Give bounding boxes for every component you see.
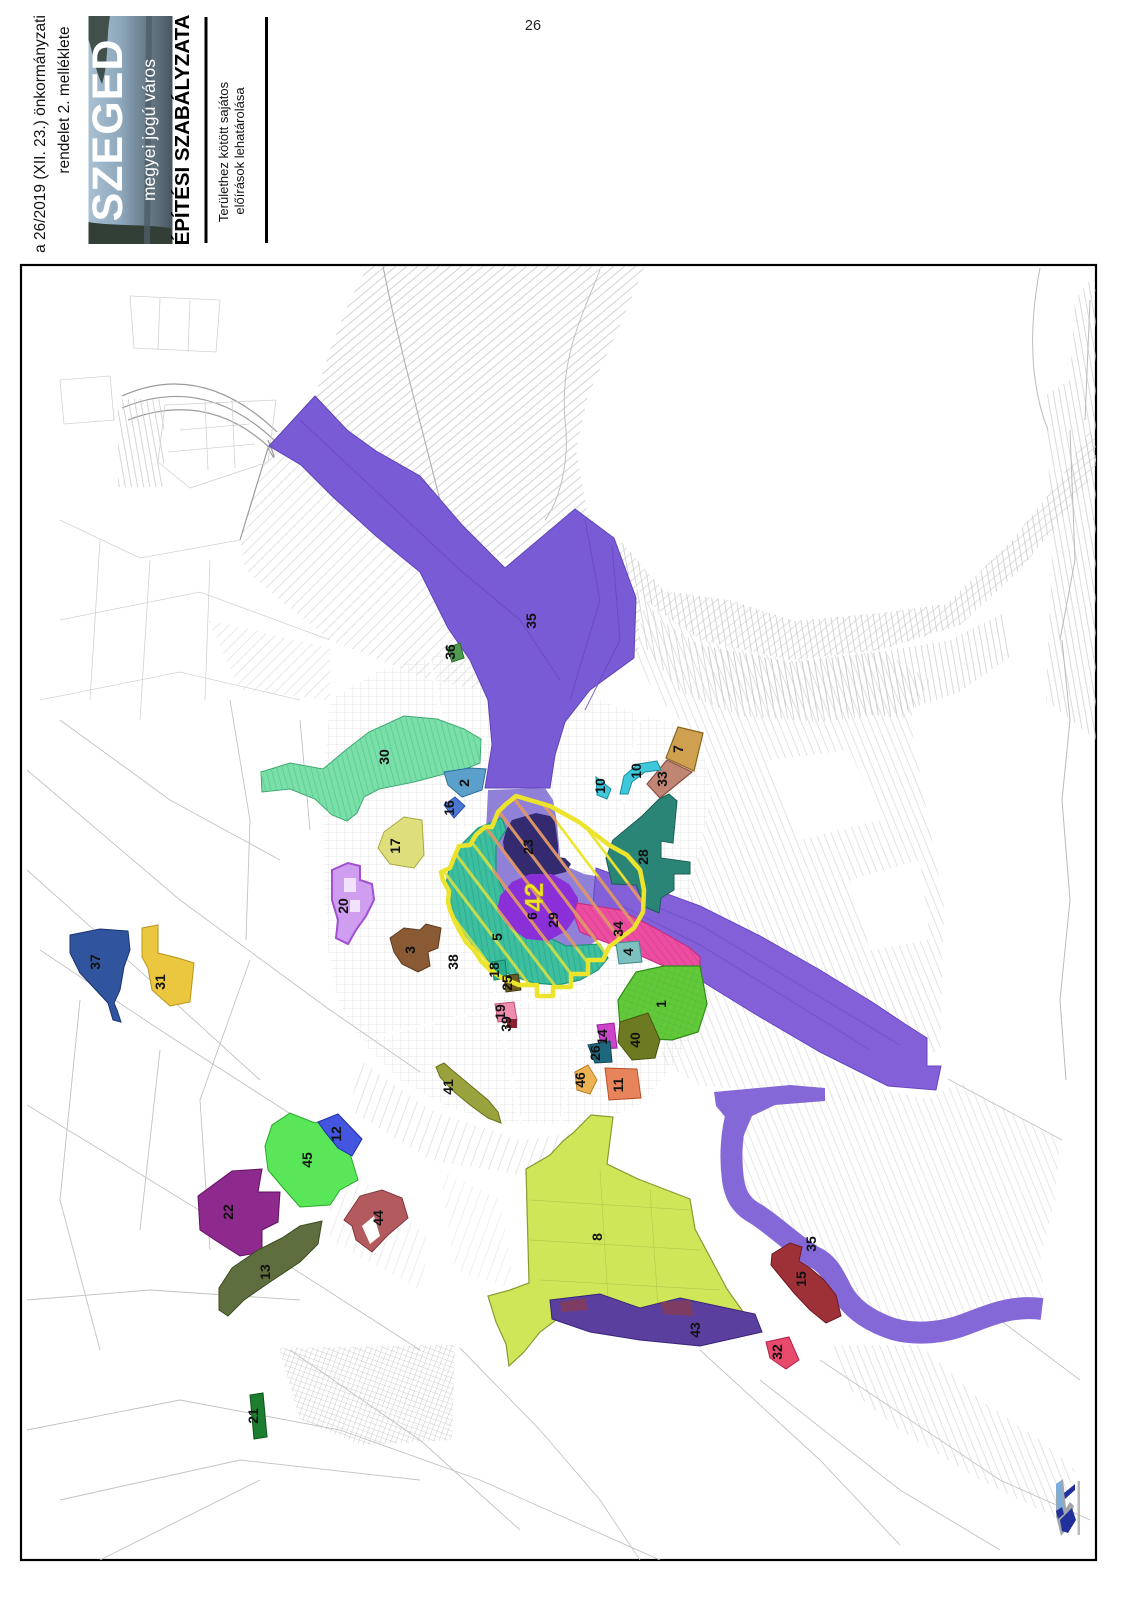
svg-text:7: 7 [670, 745, 686, 753]
svg-text:2: 2 [456, 779, 472, 787]
svg-text:34: 34 [610, 921, 626, 937]
svg-text:40: 40 [627, 1032, 643, 1048]
svg-text:26: 26 [525, 18, 541, 34]
svg-text:21: 21 [245, 1408, 261, 1424]
svg-text:20: 20 [335, 898, 351, 914]
svg-text:1: 1 [653, 1000, 669, 1008]
svg-text:4: 4 [620, 948, 636, 956]
svg-text:35: 35 [803, 1236, 819, 1252]
svg-text:14: 14 [594, 1029, 610, 1045]
svg-text:39: 39 [498, 1016, 514, 1032]
svg-text:6: 6 [524, 912, 540, 920]
svg-text:megyei jogú város: megyei jogú város [139, 59, 159, 201]
svg-text:43: 43 [687, 1322, 703, 1338]
svg-text:17: 17 [387, 838, 403, 854]
svg-text:11: 11 [610, 1077, 626, 1092]
svg-text:38: 38 [445, 954, 461, 970]
svg-text:ÉPÍTÉSI SZABÁLYZATA: ÉPÍTÉSI SZABÁLYZATA [171, 14, 194, 245]
svg-text:28: 28 [635, 849, 651, 865]
svg-text:46: 46 [572, 1072, 588, 1088]
svg-text:30: 30 [376, 749, 392, 765]
svg-text:Területhez kötött sajátos: Területhez kötött sajátos [216, 81, 231, 222]
svg-text:35: 35 [523, 613, 539, 629]
svg-text:37: 37 [87, 954, 103, 970]
svg-text:5: 5 [489, 933, 505, 941]
svg-text:a 26/2019 (XII. 23.) önkormány: a 26/2019 (XII. 23.) önkormányzati [32, 15, 49, 253]
svg-text:33: 33 [654, 771, 670, 787]
svg-text:26: 26 [587, 1045, 603, 1061]
svg-text:45: 45 [299, 1152, 315, 1168]
svg-text:42: 42 [519, 883, 549, 912]
svg-text:44: 44 [370, 1210, 386, 1226]
svg-text:36: 36 [442, 644, 458, 660]
svg-text:32: 32 [769, 1344, 785, 1360]
svg-text:41: 41 [440, 1079, 456, 1095]
svg-text:16: 16 [441, 800, 457, 816]
svg-text:12: 12 [328, 1126, 344, 1142]
svg-text:10: 10 [592, 778, 608, 794]
svg-text:SZEGED: SZEGED [84, 39, 132, 222]
svg-text:31: 31 [152, 974, 168, 990]
svg-text:10: 10 [628, 763, 644, 779]
svg-text:előírások lehatárolása: előírások lehatárolása [232, 87, 247, 215]
svg-text:25: 25 [499, 975, 515, 991]
svg-text:22: 22 [220, 1204, 236, 1220]
svg-text:13: 13 [257, 1264, 273, 1280]
svg-text:8: 8 [589, 1233, 605, 1241]
svg-text:3: 3 [402, 946, 418, 954]
svg-text:rendelet 2. melléklete: rendelet 2. melléklete [56, 26, 73, 173]
svg-text:23: 23 [520, 839, 536, 855]
svg-text:29: 29 [545, 912, 561, 928]
svg-text:15: 15 [793, 1271, 809, 1287]
